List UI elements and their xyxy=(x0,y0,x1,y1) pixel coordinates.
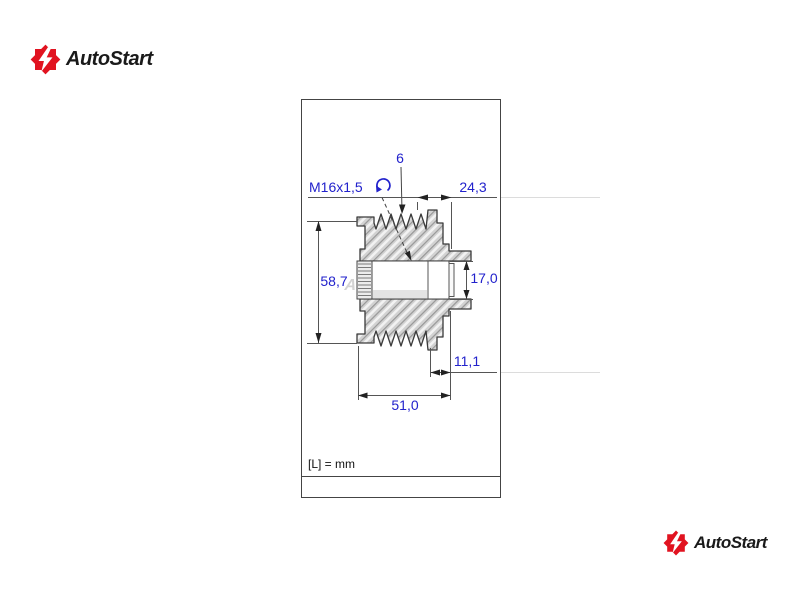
technical-drawing: AutoStart xyxy=(291,99,601,498)
svg-text:11,1: 11,1 xyxy=(454,353,480,369)
svg-text:51,0: 51,0 xyxy=(391,397,418,413)
units-note: [L] = mm xyxy=(308,457,355,471)
page: AutoStart AutoStart xyxy=(0,0,800,600)
brand-cog-bolt-icon xyxy=(663,530,689,556)
svg-text:6: 6 xyxy=(396,150,404,166)
brand-name: AutoStart xyxy=(694,533,767,553)
brand-name: AutoStart xyxy=(66,48,153,71)
autostart-logo-top[interactable]: AutoStart xyxy=(30,44,153,75)
svg-text:17,0: 17,0 xyxy=(470,270,497,286)
svg-text:24,3: 24,3 xyxy=(459,179,486,195)
svg-text:M16x1,5: M16x1,5 xyxy=(309,179,363,195)
splined-sleeve xyxy=(357,261,372,299)
pulley-dimension-diagram: AutoStart xyxy=(291,99,601,498)
brand-cog-bolt-icon xyxy=(30,44,61,75)
svg-text:58,7: 58,7 xyxy=(320,273,347,289)
bore-shading xyxy=(373,290,427,299)
autostart-logo-bottom[interactable]: AutoStart xyxy=(663,530,767,556)
inner-race-end-face xyxy=(449,264,454,297)
